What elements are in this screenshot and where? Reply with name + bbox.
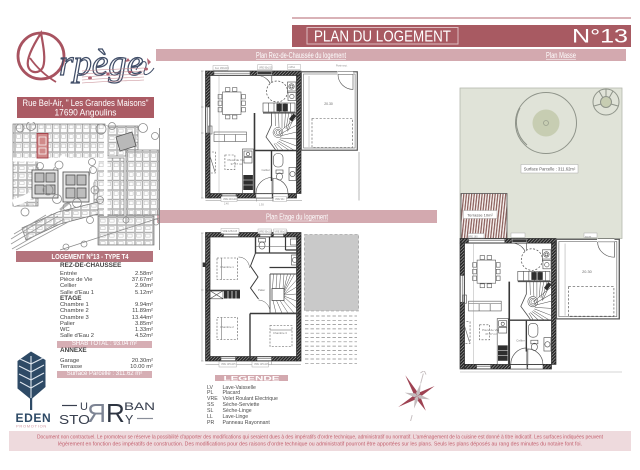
svg-text:Y: Y [125, 413, 134, 427]
svg-text:VRE 80x115: VRE 80x115 [275, 230, 289, 233]
svg-text:LEGENDE: LEGENDE [224, 375, 280, 381]
svg-text:N°13: N°13 [572, 27, 628, 48]
svg-text:1.93: 1.93 [259, 204, 264, 207]
svg-text:PROMOTION: PROMOTION [16, 424, 47, 429]
svg-text:Chambre 2: Chambre 2 [220, 325, 234, 329]
svg-text:légèrement en fonction des imp: légèrement en fonction des impératifs de… [58, 442, 582, 448]
svg-text:U: U [80, 401, 88, 413]
svg-text:VRE 180: VRE 180 [468, 236, 478, 239]
svg-text:R: R [106, 398, 125, 428]
svg-text:BAN: BAN [124, 401, 155, 413]
svg-text:PLAN DU LOGEMENT: PLAN DU LOGEMENT [314, 29, 451, 46]
svg-text:Document non contractuel. Le p: Document non contractuel. Le promoteur s… [37, 435, 603, 441]
svg-text:Fen 180x115: Fen 180x115 [215, 67, 229, 70]
svg-text:VRE 90x115: VRE 90x115 [259, 230, 273, 233]
svg-text:Chambre 1: Chambre 1 [220, 265, 234, 269]
svg-text:LOGEMENT N°13 - TYPE T4: LOGEMENT N°13 - TYPE T4 [51, 252, 128, 261]
svg-text:VRE 90x215: VRE 90x215 [259, 67, 273, 70]
svg-text:2.40: 2.40 [224, 203, 229, 206]
svg-text:Plan Masse: Plan Masse [546, 50, 576, 60]
svg-text:R: R [87, 398, 106, 428]
svg-text:Surface Parcelle : 311.62m²: Surface Parcelle : 311.62m² [524, 167, 576, 172]
svg-text:Plan Etage du logement: Plan Etage du logement [266, 212, 328, 222]
svg-text:VRE 90x: VRE 90x [275, 198, 285, 201]
svg-text:17690 Angoulins: 17690 Angoulins [55, 107, 118, 117]
svg-text:Terrasse 10m²: Terrasse 10m² [467, 212, 493, 217]
svg-text:Porte sect.: Porte sect. [336, 65, 348, 68]
svg-text:Palier: Palier [258, 288, 265, 292]
svg-text:VRE 240x215: VRE 240x215 [223, 198, 238, 201]
svg-text:VRE 125x115: VRE 125x115 [221, 363, 236, 366]
svg-text:STO: STO [59, 413, 90, 427]
svg-text:coffret: coffret [289, 66, 296, 69]
svg-text:Rue Bel-Air, " Les Grandes Mai: Rue Bel-Air, " Les Grandes Maisons" [23, 98, 149, 108]
svg-text:acces: acces [585, 236, 592, 239]
svg-text:VRE 125x115: VRE 125x115 [254, 363, 269, 366]
svg-text:VRE 125x115: VRE 125x115 [223, 230, 238, 233]
svg-text:Chambre 3: Chambre 3 [273, 331, 287, 335]
